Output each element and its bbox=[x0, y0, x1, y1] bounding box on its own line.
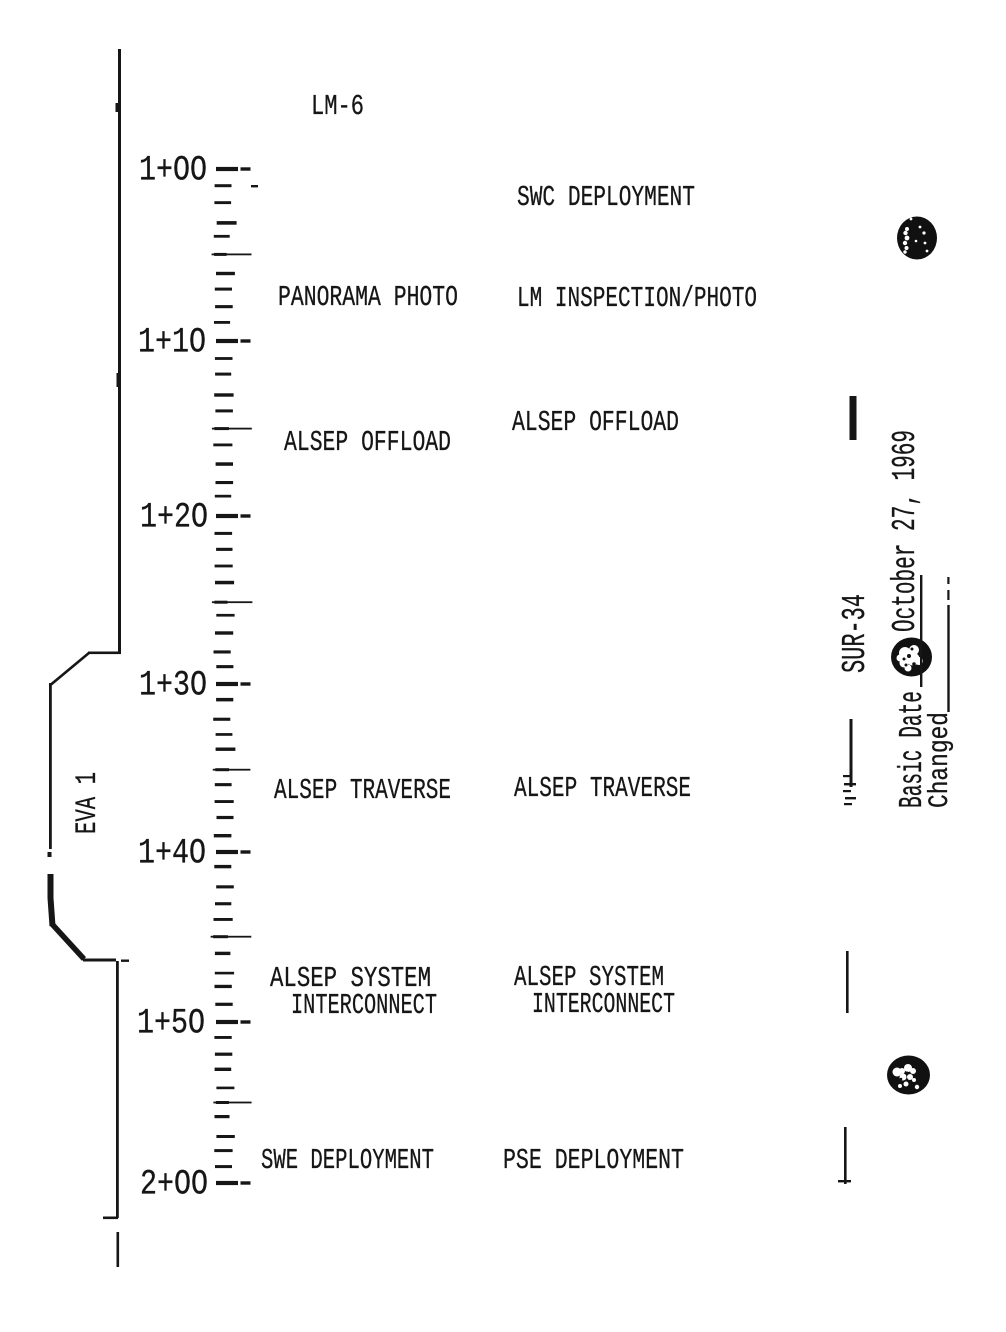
svg-text:SWC DEPLOYMENT: SWC DEPLOYMENT bbox=[517, 181, 695, 214]
svg-text:2+OO: 2+OO bbox=[140, 1165, 208, 1205]
svg-text:Changed: Changed bbox=[925, 712, 956, 808]
svg-text:1+2O: 1+2O bbox=[140, 498, 208, 538]
svg-text:ALSEP TRAVERSE: ALSEP TRAVERSE bbox=[274, 774, 451, 807]
svg-text:1+5O: 1+5O bbox=[137, 1004, 205, 1044]
svg-text:SWE DEPLOYMENT: SWE DEPLOYMENT bbox=[261, 1144, 434, 1177]
svg-text:LM-6: LM-6 bbox=[311, 90, 364, 123]
svg-text:October 27, 1969: October 27, 1969 bbox=[887, 430, 924, 632]
svg-text:1+1O: 1+1O bbox=[138, 323, 206, 363]
svg-text:PSE DEPLOYMENT: PSE DEPLOYMENT bbox=[503, 1144, 684, 1177]
svg-text:INTERCONNECT: INTERCONNECT bbox=[291, 989, 437, 1022]
svg-text:ALSEP OFFLOAD: ALSEP OFFLOAD bbox=[512, 406, 679, 439]
svg-text:PANORAMA PHOTO: PANORAMA PHOTO bbox=[278, 281, 458, 314]
svg-text:1+4O: 1+4O bbox=[138, 834, 206, 874]
svg-text:1+3O: 1+3O bbox=[139, 666, 207, 706]
svg-text:EVA 1: EVA 1 bbox=[71, 772, 105, 834]
svg-text:1+OO: 1+OO bbox=[139, 151, 207, 191]
svg-text:SUR-34: SUR-34 bbox=[837, 594, 874, 673]
svg-text:LM INSPECTION/PHOTO: LM INSPECTION/PHOTO bbox=[517, 282, 757, 315]
svg-text:INTERCONNECT: INTERCONNECT bbox=[532, 988, 675, 1021]
svg-text:ALSEP TRAVERSE: ALSEP TRAVERSE bbox=[514, 772, 691, 805]
svg-text:ALSEP OFFLOAD: ALSEP OFFLOAD bbox=[284, 426, 451, 459]
